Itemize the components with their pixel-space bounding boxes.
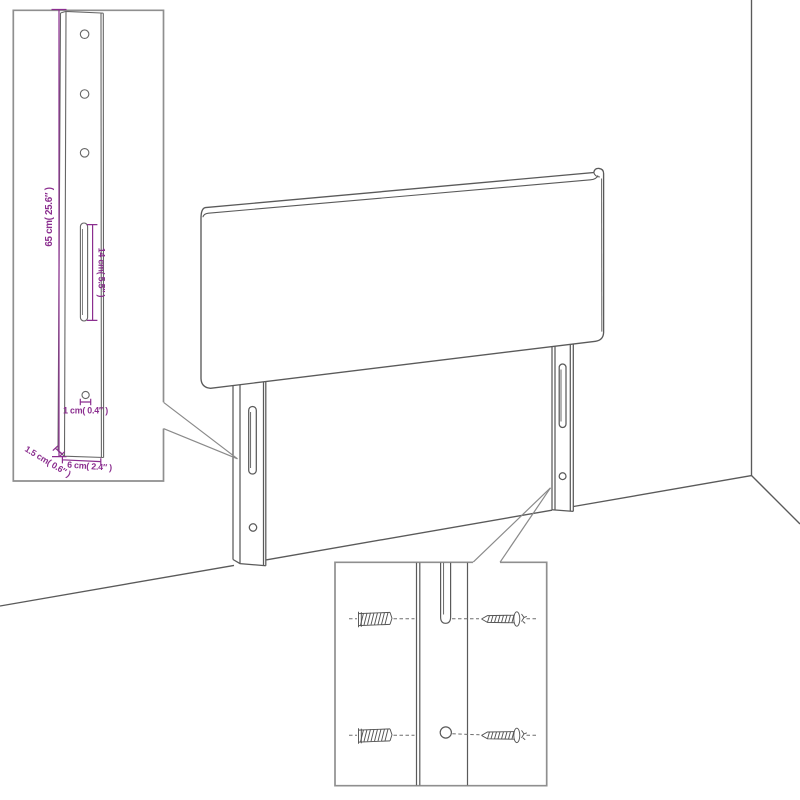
leg-detail-callout-lines [164,402,238,459]
left-leg-slot [249,407,257,475]
leg-detail-inset: 65 cm( 25.6″ ) 14 cm( 5.5″ ) 1 cm( 0.4″ … [13,10,163,482]
product-diagram: 65 cm( 25.6″ ) 14 cm( 5.5″ ) 1 cm( 0.4″ … [0,0,800,800]
right-leg-slot [559,364,566,428]
right-leg [552,340,573,511]
left-leg-hole [249,524,256,531]
dim-label-hole: 1 cm( 0.4″ ) [63,406,108,416]
mounting-detail-inset [335,562,547,785]
right-leg-hole [559,473,566,480]
floor-corner-line [752,476,800,525]
dim-label-slot: 14 cm( 5.5″ ) [96,248,106,298]
dim-label-height: 65 cm( 25.6″ ) [44,187,55,246]
mounting-callout-lines [473,488,551,563]
diagram-canvas: 65 cm( 25.6″ ) 14 cm( 5.5″ ) 1 cm( 0.4″ … [0,0,800,800]
headboard-panel [201,168,604,388]
left-leg [233,380,266,566]
